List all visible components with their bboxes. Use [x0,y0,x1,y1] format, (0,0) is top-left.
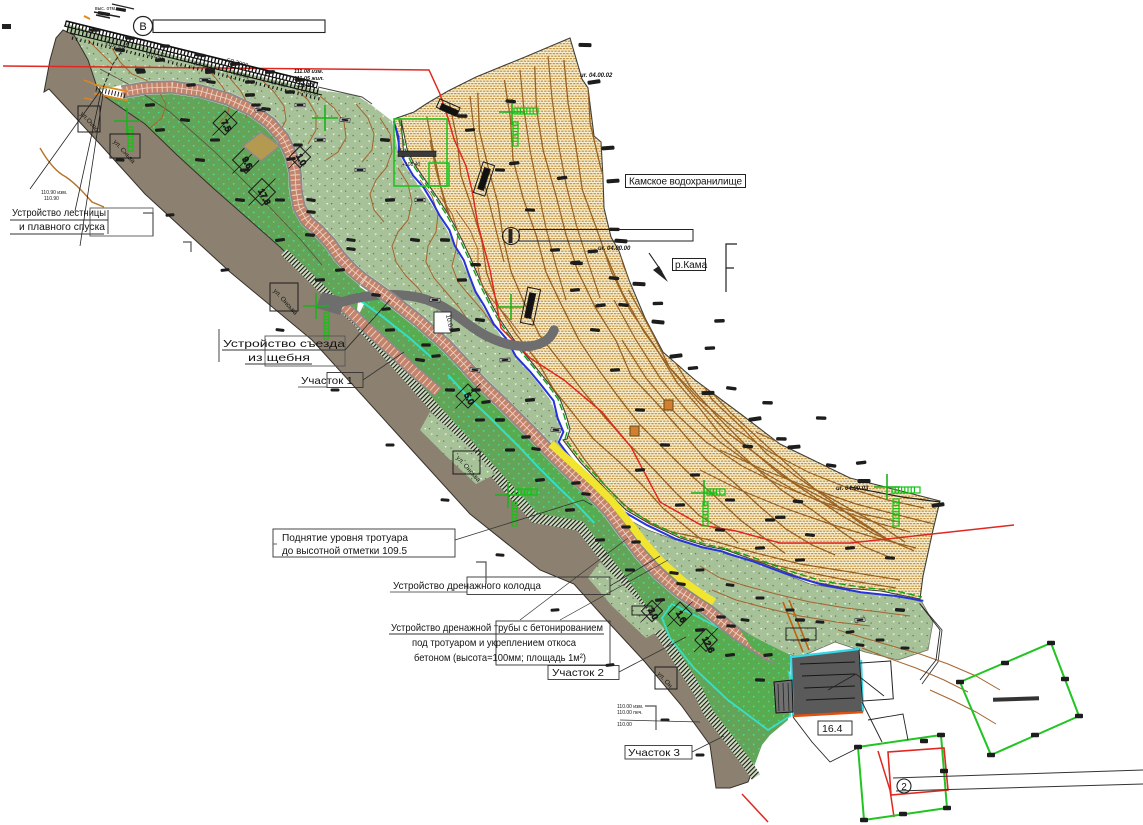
svg-text:ur. 04.00.02: ur. 04.00.02 [580,73,613,79]
svg-text:110.00: 110.00 [617,722,632,728]
svg-text:Устройство съезда: Устройство съезда [223,338,345,350]
svg-text:111.08 изм.: 111.08 изм. [294,69,324,75]
svg-text:110.00 печ.: 110.00 печ. [617,710,643,716]
svg-text:Участок 2: Участок 2 [552,667,604,679]
svg-text:Участок 3: Участок 3 [628,747,680,759]
svg-text:под тротуаром и укреплением от: под тротуаром и укреплением откоса [412,637,576,649]
svg-text:из щебня: из щебня [248,352,310,364]
svg-text:Устройство лестницы: Устройство лестницы [12,207,106,219]
svg-text:Камское водохранилище: Камское водохранилище [629,177,742,188]
svg-text:ur. 04.00.00: ur. 04.00.00 [598,246,631,252]
svg-text:+108.40: +108.40 [402,162,420,168]
svg-text:Поднятие уровня тротуара: Поднятие уровня тротуара [282,532,408,544]
svg-text:16.4: 16.4 [822,723,843,735]
svg-text:110.90: 110.90 [44,196,59,202]
svg-text:до высотной отметки 109.5: до высотной отметки 109.5 [282,545,407,557]
svg-text:В: В [139,21,146,33]
svg-text:111.10: 111.10 [297,83,313,89]
svg-text:бетоном (высота=100мм; площадь: бетоном (высота=100мм; площадь 1м²) [414,652,586,664]
svg-text:Устройство дренажной трубы с б: Устройство дренажной трубы с бетонирован… [391,622,603,634]
svg-text:ur. 04.00.03: ur. 04.00.03 [836,486,869,492]
svg-text:и плавного спуска: и плавного спуска [19,221,105,233]
svg-text:выс. отм.: выс. отм. [95,6,116,12]
svg-text:111.05 жил.: 111.05 жил. [294,76,324,82]
svg-text:р.Кама: р.Кама [675,260,708,271]
svg-text:2: 2 [901,782,907,793]
